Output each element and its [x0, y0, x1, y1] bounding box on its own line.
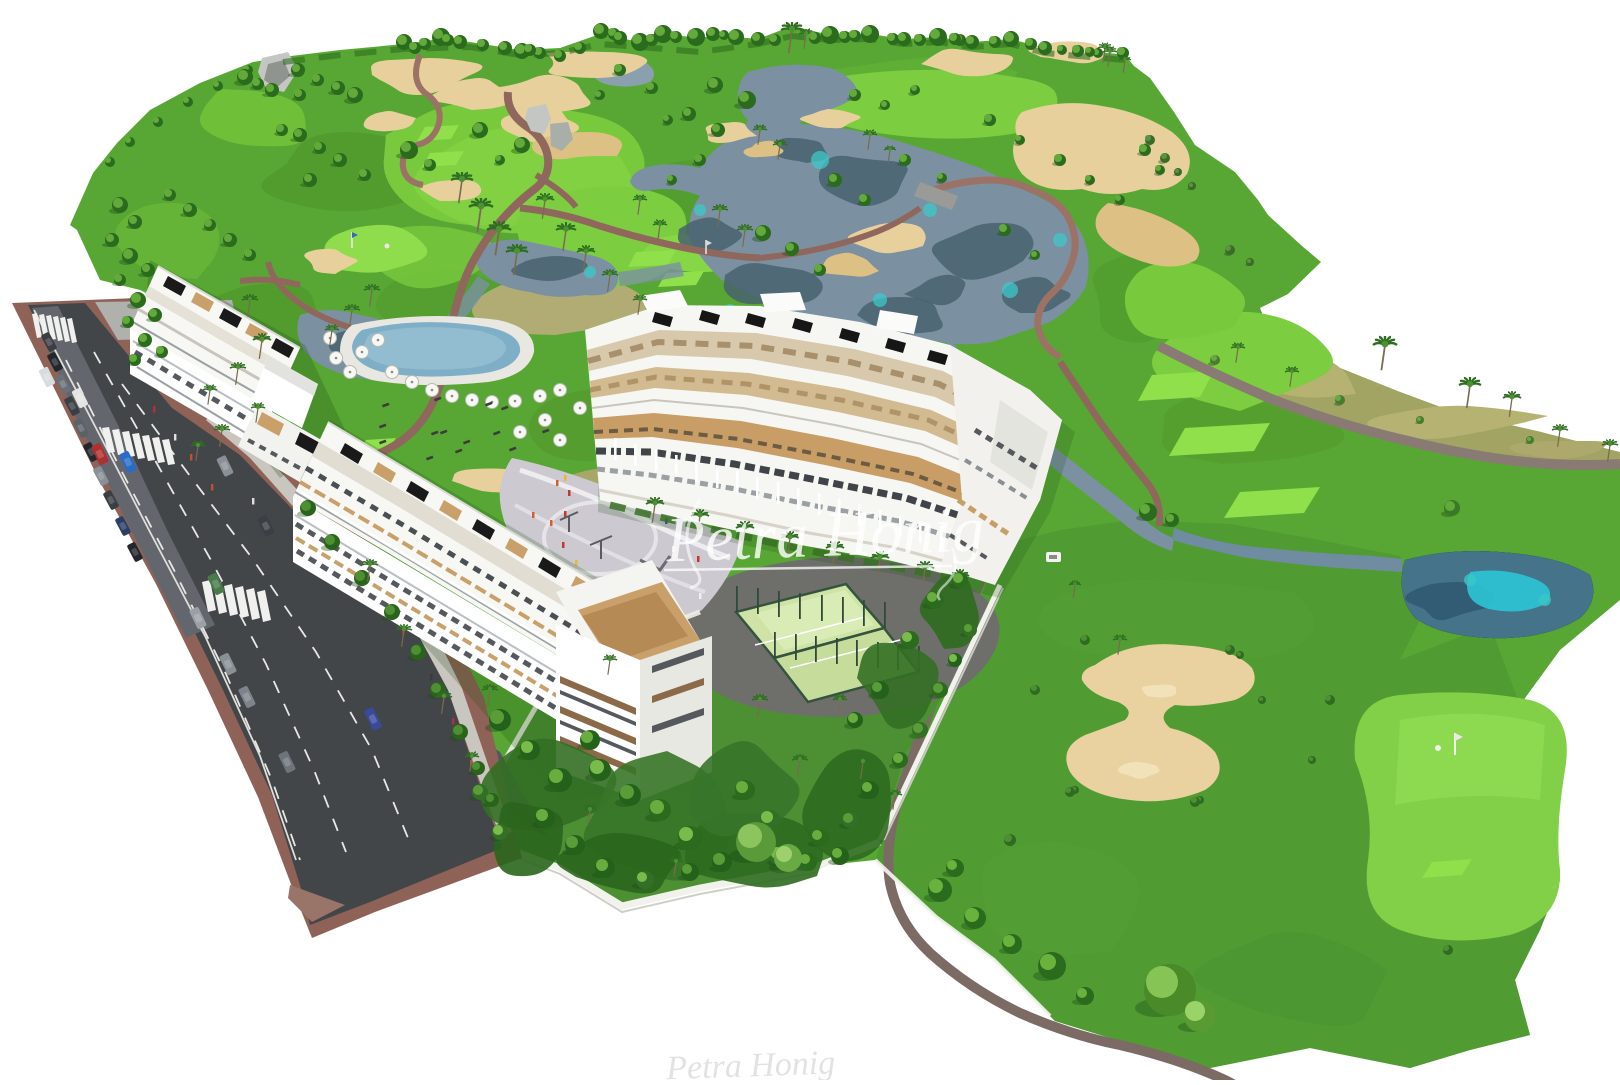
svg-text:Petra Honig: Petra Honig [665, 1044, 836, 1080]
svg-text:Petra Honig: Petra Honig [664, 493, 985, 575]
